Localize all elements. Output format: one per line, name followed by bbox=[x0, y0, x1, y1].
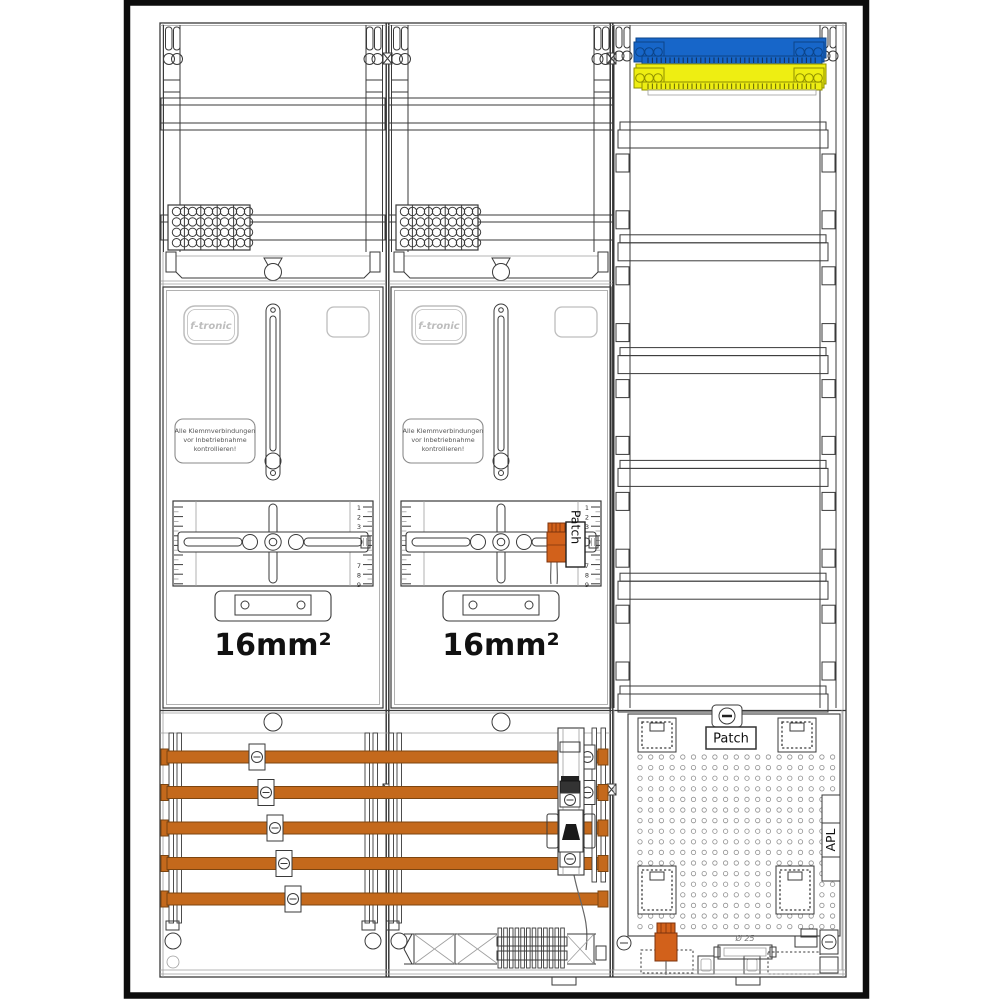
conduit-diameter-label: Ø 25 bbox=[734, 933, 754, 943]
drawing-border bbox=[127, 3, 866, 996]
patch-module-label: Patch bbox=[569, 510, 584, 544]
apl-section: Patch APL Ø 25 bbox=[614, 705, 842, 975]
pe-terminal-bar bbox=[634, 64, 826, 95]
conduit-bracket: Ø 25 bbox=[714, 933, 776, 959]
meter-cabinet-diagram: f-tronic Alle Klemmverbindungen vor Inbe… bbox=[0, 0, 1000, 1000]
din-rail-rows bbox=[616, 122, 835, 712]
apl-bottom-fittings: Ø 25 bbox=[617, 923, 838, 975]
apl-patch-connector bbox=[655, 933, 677, 961]
busbars bbox=[161, 728, 608, 912]
meter-field-left bbox=[160, 25, 386, 708]
apl-label: APL bbox=[823, 828, 838, 851]
meter-field-middle bbox=[388, 25, 614, 708]
apl-label-strip: APL bbox=[822, 795, 840, 881]
distribution-column bbox=[613, 25, 845, 712]
apl-patch-label: Patch bbox=[713, 732, 749, 747]
terminal-comb-block bbox=[497, 925, 567, 969]
